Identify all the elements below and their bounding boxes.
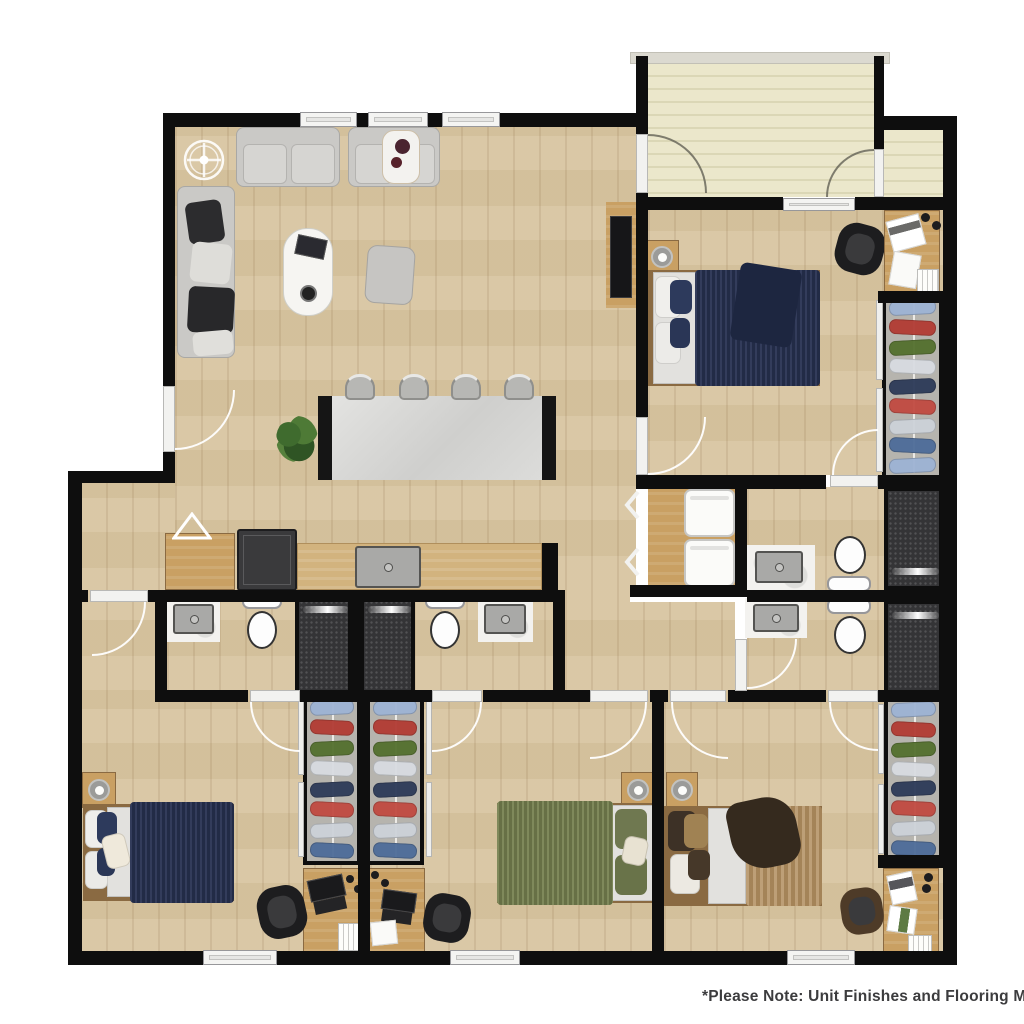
desk [303,868,362,953]
book-stack [338,923,360,951]
desk-accessory [371,871,379,879]
hanging-garment [373,842,418,859]
lamp-icon [627,779,649,801]
wall [68,471,175,483]
closet-bedroom3 [366,693,424,865]
pillow-brown [688,850,710,880]
hanging-garment [889,417,937,434]
duvet-navy [130,802,234,903]
bathroom-sink [484,604,526,634]
hallway-floor [565,602,735,690]
hanging-garment [889,457,937,474]
lamp-bulb [95,786,104,795]
wall [943,117,957,965]
hanging-garment [373,740,418,757]
seat-cushion [243,144,287,184]
lamp-bulb [658,253,667,262]
wall [747,590,943,602]
dining-chair [504,374,534,400]
lamp-bulb [634,786,643,795]
window [783,198,855,211]
wall [636,475,826,489]
wall [636,197,783,210]
counter-end-cap [542,543,558,590]
hanging-garment [373,760,418,777]
wall [878,690,943,702]
duvet-green [497,801,613,905]
hanging-clothes [891,702,936,856]
closet-door-track [426,782,432,857]
coffee-table [283,228,333,316]
pillow-navy [670,280,692,314]
dish-rack-icon [172,512,212,540]
hanging-garment [891,820,937,837]
hanging-garment [891,741,937,758]
patio-door [636,134,648,193]
ottoman [364,244,416,305]
wall [874,56,884,149]
closet-bedroom1 [882,293,943,480]
closet-door-track [878,704,884,774]
hanging-garment [310,719,355,736]
toilet [826,534,874,598]
patio-divider-door [874,149,884,197]
hanging-garment [310,821,355,838]
desk-accessory [922,884,931,893]
closet-bedroom2 [303,693,361,865]
bathroom-sink [755,551,803,583]
wall [483,690,590,702]
window [442,112,500,127]
lamp-icon [671,779,693,801]
window [300,112,357,127]
wall [652,690,664,965]
wall [735,475,747,597]
door [735,639,747,691]
plant [276,416,318,462]
seat-cushion [291,144,335,184]
nightstand [666,772,698,808]
sectional-sofa [177,186,235,358]
shower [360,596,415,702]
door [250,690,300,702]
desk-accessory [381,879,389,887]
island-top [332,396,542,480]
bed-3 [497,803,659,903]
wall [728,690,826,702]
fridge-inner [243,535,291,585]
wall [878,475,943,489]
lamp-icon [88,779,110,801]
cup [395,139,410,154]
hanging-garment [891,760,937,777]
tv-icon [610,216,632,298]
toilet [241,594,285,654]
closet-bedroom4 [884,695,943,863]
closet-door-track [298,782,304,857]
desk-accessory [932,221,941,230]
wall [68,590,88,602]
door [590,690,648,702]
hanging-garment [373,781,418,798]
hanging-clothes [310,700,354,858]
hanging-garment [310,801,355,818]
hanging-garment [891,780,937,797]
shower [884,600,943,699]
disclaimer-note: *Please Note: Unit Finishes and Flooring… [702,988,1024,1006]
hanging-garment [889,437,937,454]
toilet-bowl [430,611,460,649]
nightstand [82,772,116,808]
entry-nook-floor [80,483,175,602]
toilet [826,596,874,660]
papers [370,920,398,947]
window [368,112,428,127]
throw-pillow-light [189,241,233,285]
shower [295,596,352,702]
throw-pillow-light [192,329,234,356]
toilet-bowl [834,616,866,654]
throw-pillow-dark [187,286,235,334]
wall [350,590,362,702]
ceiling-fan-icon [181,137,227,183]
door [828,690,878,702]
desk [883,868,939,955]
shower-door-handle [368,606,411,613]
dining-chair [345,374,375,400]
desk [366,868,425,953]
closet-door-track [878,784,884,854]
papers [886,871,918,906]
kitchen-cabinet [165,533,235,590]
window [203,950,277,965]
hallway-opening-floor [565,590,630,602]
wall [68,471,82,965]
door [670,690,726,702]
shower [884,487,943,590]
lamp-icon [651,246,673,268]
door [830,475,878,487]
washer [684,489,735,537]
hanging-garment [889,319,937,336]
laptop [307,874,350,917]
wall [878,855,943,868]
hanging-clothes [373,700,417,858]
bed-2 [83,804,234,901]
wall [636,193,648,417]
papers [886,905,917,935]
window [787,950,855,965]
hanging-garment [889,338,937,355]
toilet-bowl [834,536,866,574]
hanging-garment [891,721,937,738]
wall [630,585,747,597]
hanging-garment [889,358,937,375]
hanging-garment [889,378,937,395]
hanging-garment [889,398,937,415]
nightstand [645,240,679,274]
throw-pillow-dark [184,199,225,246]
hanging-garment [891,800,937,817]
wall [163,113,175,388]
hanging-garment [373,801,418,818]
door [432,690,482,702]
kitchen-sink [355,546,421,588]
hanging-garment [891,701,937,718]
toilet-bowl [247,611,277,649]
desk-accessory [346,875,354,883]
toilet [424,594,468,654]
lamp-bulb [678,786,687,795]
bed-1 [645,270,820,386]
wall [155,690,248,702]
floor-plan: *Please Note: Unit Finishes and Flooring… [0,0,1024,1024]
bifold-door-icon [624,490,640,520]
shower-door-handle [892,612,939,619]
pillow-navy [670,318,690,348]
patio-right-section [884,130,943,197]
hanging-clothes [889,300,936,473]
door [636,417,648,475]
dryer [684,539,735,587]
hanging-garment [310,740,355,757]
wall [636,56,648,136]
bifold-door-icon [624,547,640,577]
closet-door-track [876,300,883,380]
shower-door-handle [303,606,348,613]
desk-accessory [921,213,930,222]
hanging-garment [310,842,355,859]
hanging-garment [373,821,418,838]
bed-4 [664,806,822,906]
dining-chair [399,374,429,400]
throw-blanket [729,262,802,349]
desk-accessory [924,873,933,882]
living-dining-floor [175,127,636,590]
hanging-garment [310,760,355,777]
cup [391,157,402,168]
desk [884,210,940,296]
window [450,950,520,965]
tv-console [606,202,638,308]
patio-screen-frame [630,52,890,64]
round-tray [300,285,317,302]
wall [855,197,943,210]
hanging-garment [310,781,355,798]
shower-door-handle [892,568,939,575]
wall [874,116,957,130]
bathroom-sink [173,604,214,634]
wall [878,291,943,303]
door [90,590,148,602]
pillow-tan [684,814,708,848]
wall [358,690,370,965]
bathroom-sink [753,604,799,632]
hanging-garment [373,719,418,736]
dining-island [318,396,556,480]
entry-door [163,386,175,452]
dining-chair [451,374,481,400]
wall [155,590,167,702]
side-table [382,130,420,184]
refrigerator [237,529,297,591]
loveseat-1 [236,127,340,187]
book-stack [917,269,939,293]
wall [553,590,565,702]
magazine [294,234,328,260]
